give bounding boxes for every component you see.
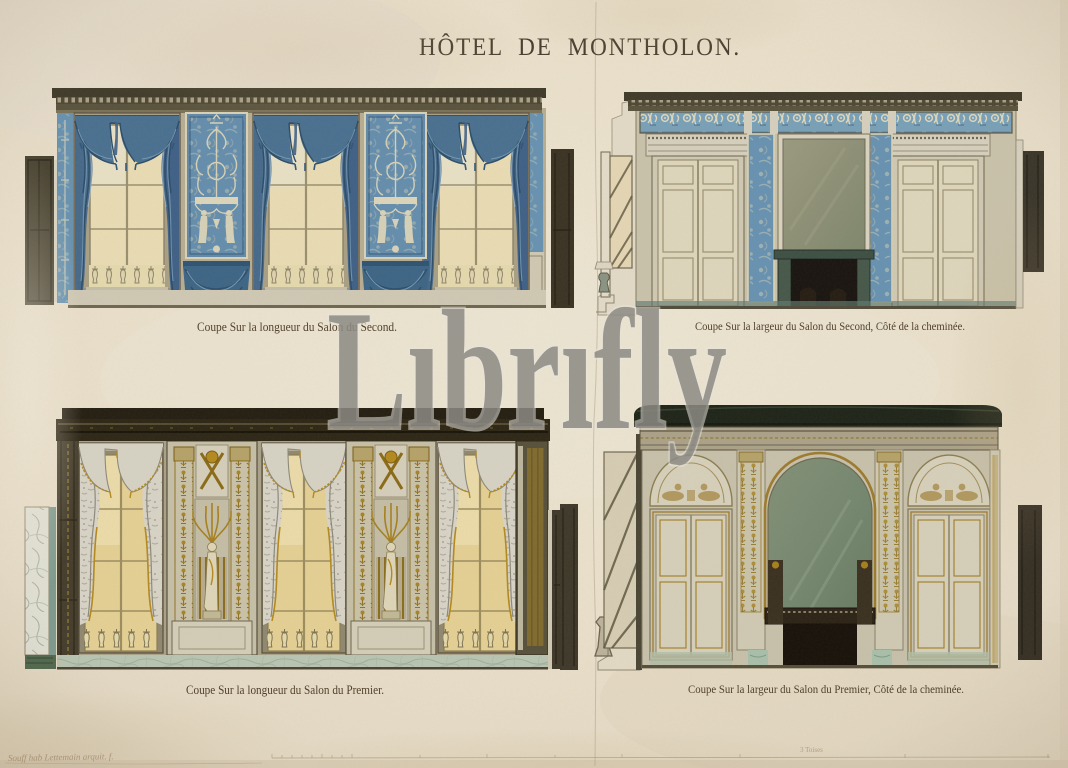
svg-text:Coupe Sur la largeur du Salon: Coupe Sur la largeur du Salon du Second,… (695, 319, 965, 333)
svg-text:Coupe Sur la longueur du Salon: Coupe Sur la longueur du Salon du Premie… (186, 683, 384, 697)
svg-text:Souff hab Lettemain arquit. f.: Souff hab Lettemain arquit. f. (8, 751, 114, 763)
svg-text:Coupe Sur la largeur du Salon: Coupe Sur la largeur du Salon du Premier… (688, 682, 964, 696)
svg-text:Lıbrıfly: Lıbrıfly (327, 276, 727, 466)
svg-text:3 Toises: 3 Toises (800, 746, 823, 754)
svg-text:HÔTEL DE MONTHOLON.: HÔTEL DE MONTHOLON. (419, 33, 741, 61)
